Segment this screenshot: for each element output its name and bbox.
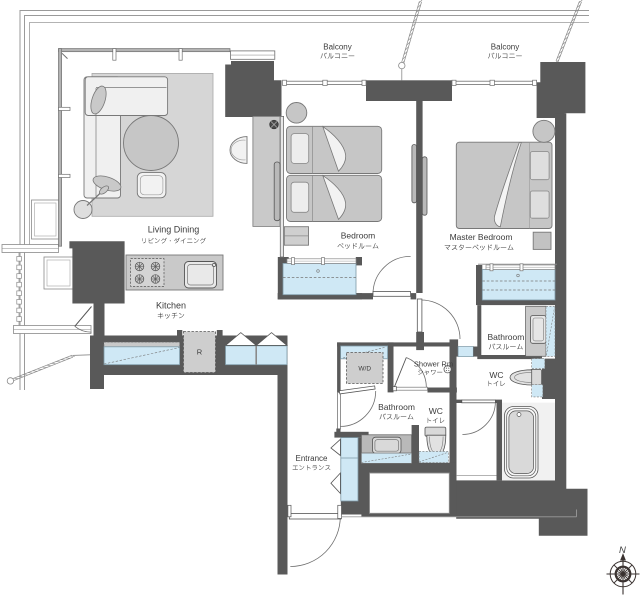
svg-text:R: R	[197, 348, 203, 357]
svg-text:Balcony: Balcony	[491, 43, 519, 52]
svg-text:Bathroom: Bathroom	[378, 402, 415, 412]
svg-text:WC: WC	[489, 370, 503, 380]
svg-text:Bedroom: Bedroom	[341, 231, 376, 241]
svg-text:N: N	[619, 545, 626, 556]
svg-text:W/D: W/D	[358, 366, 371, 373]
svg-text:Balcony: Balcony	[323, 43, 351, 52]
svg-text:Bathroom: Bathroom	[487, 332, 524, 342]
svg-text:Shower Rm: Shower Rm	[414, 359, 453, 368]
svg-text:Living Dining: Living Dining	[148, 225, 200, 235]
svg-text:Kitchen: Kitchen	[156, 301, 186, 311]
svg-text:Master Bedroom: Master Bedroom	[450, 232, 513, 242]
svg-text:Entrance: Entrance	[295, 454, 328, 463]
svg-text:WC: WC	[429, 406, 443, 416]
